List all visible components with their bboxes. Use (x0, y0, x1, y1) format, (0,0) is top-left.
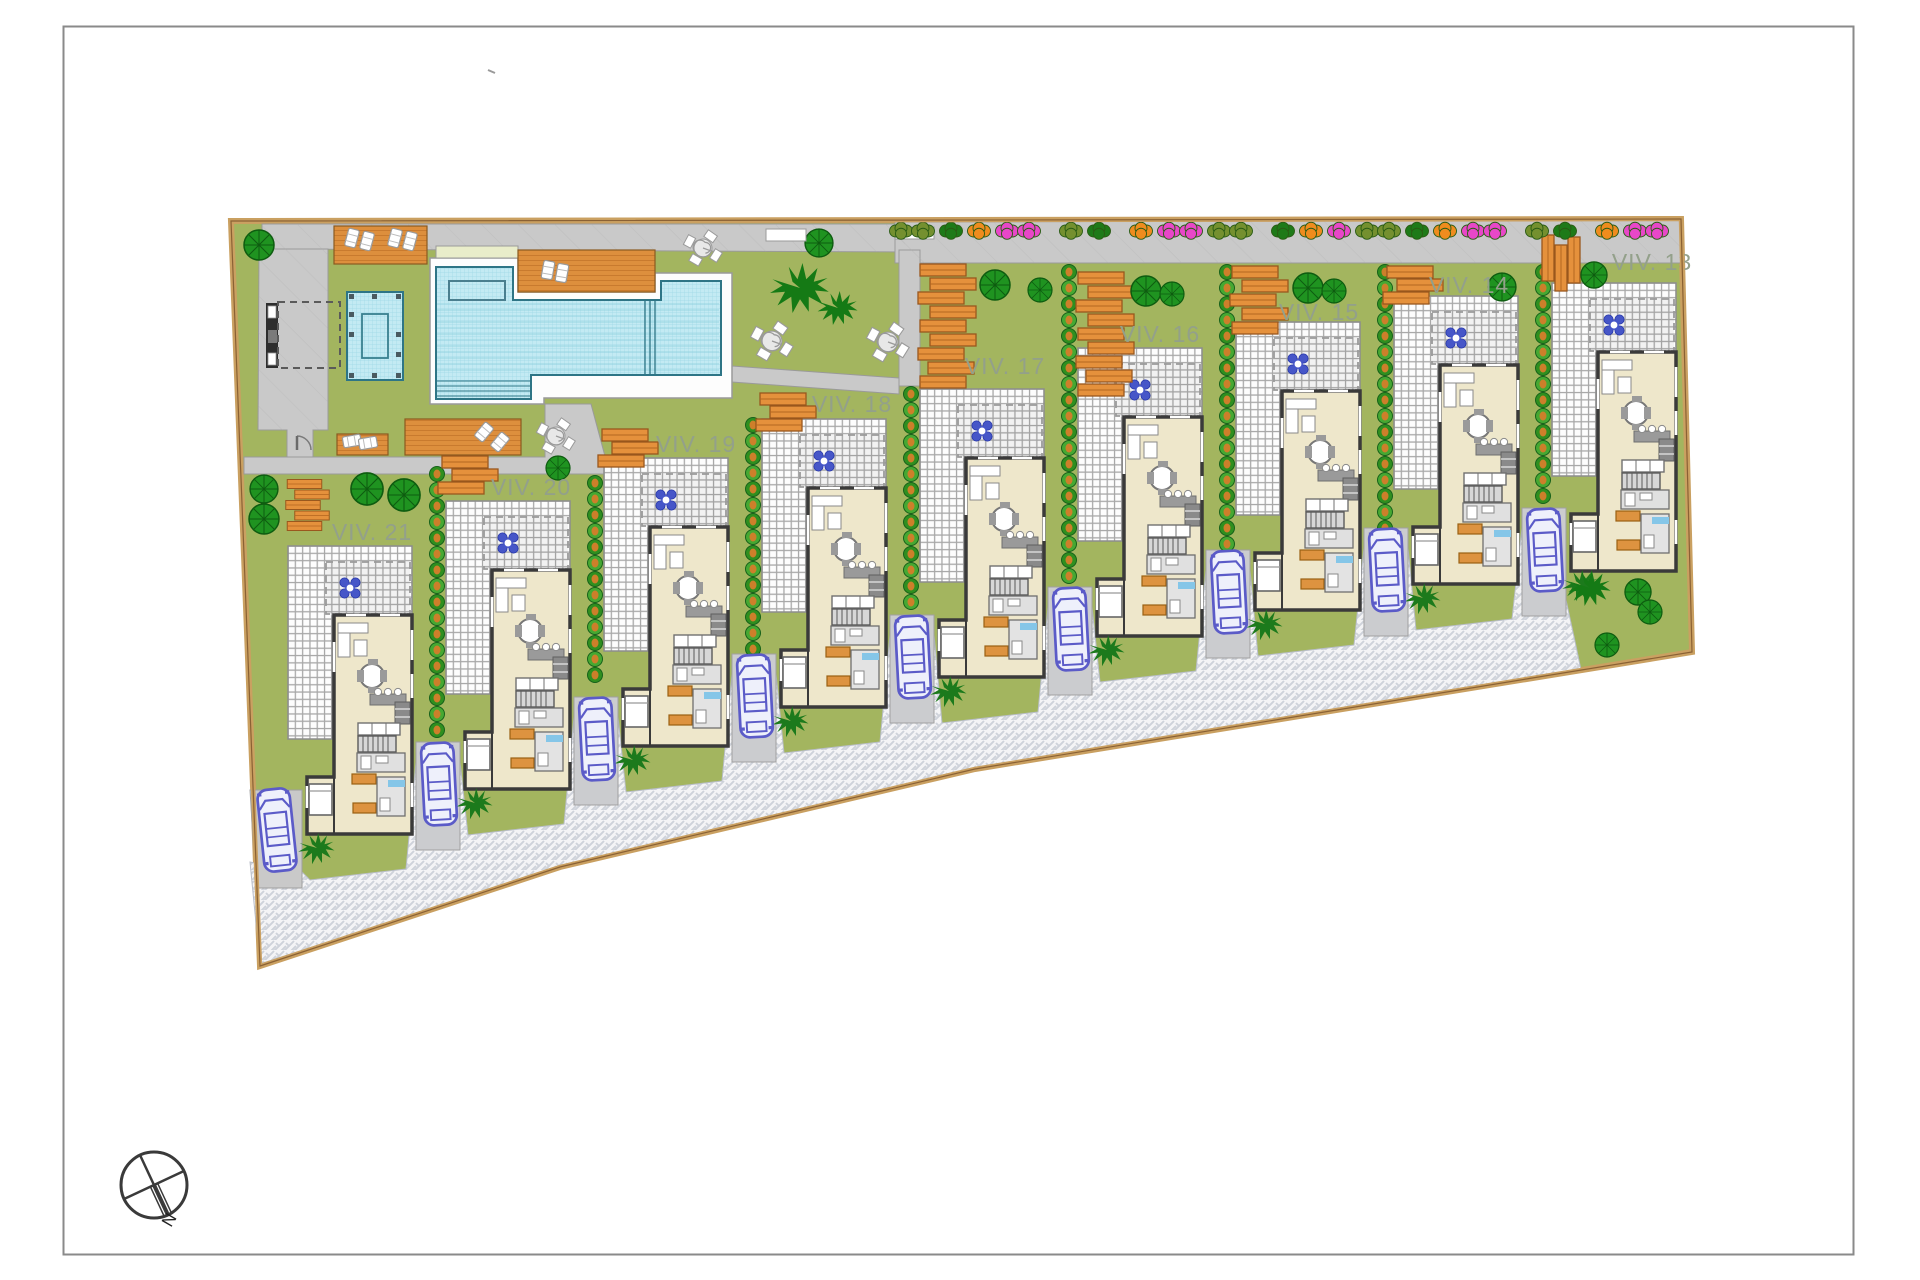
svg-text:VIV. 21: VIV. 21 (332, 519, 412, 545)
svg-text:VIV. 18: VIV. 18 (812, 391, 892, 417)
svg-text:VIV. 20: VIV. 20 (491, 474, 571, 500)
svg-text:VIV. 17: VIV. 17 (965, 353, 1045, 379)
svg-text:VIV. 14: VIV. 14 (1429, 272, 1509, 298)
svg-text:VIV. 19: VIV. 19 (656, 431, 736, 457)
svg-text:VIV. 16: VIV. 16 (1120, 321, 1200, 347)
svg-text:VIV. 15: VIV. 15 (1279, 299, 1359, 325)
